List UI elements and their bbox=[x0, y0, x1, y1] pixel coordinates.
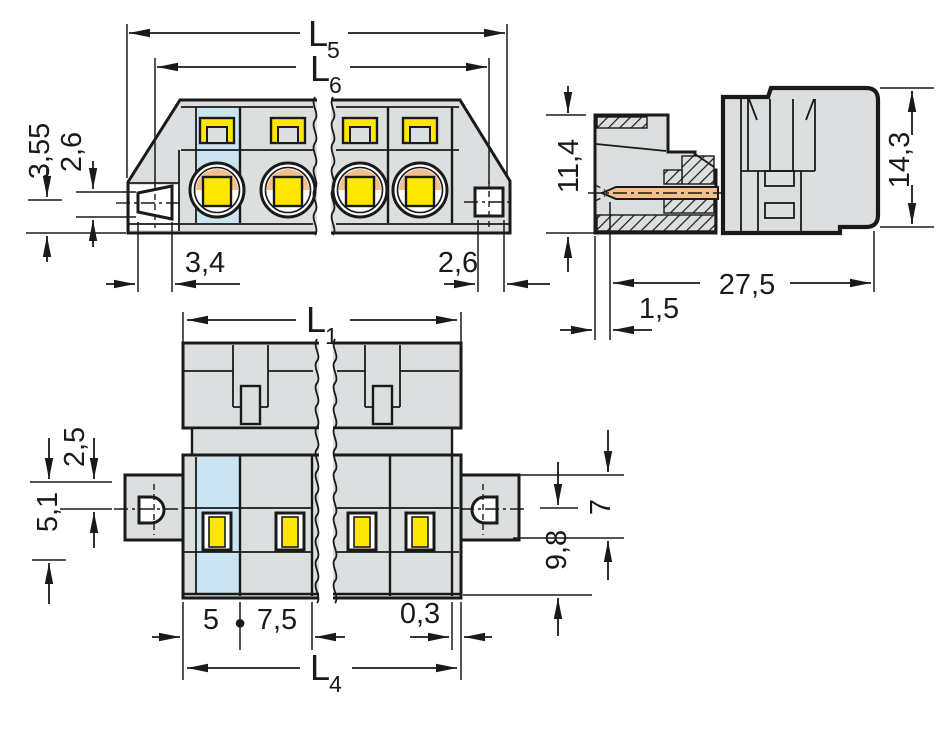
side-housing bbox=[723, 88, 878, 233]
dim-label-L4: L bbox=[310, 647, 330, 688]
clamp-window bbox=[200, 118, 234, 143]
front-view: L 5 L 6 3,55 2,6 3,4 2,6 bbox=[24, 13, 550, 292]
dim-label-L1-sub: 1 bbox=[325, 323, 338, 349]
dim-label-5-1: 5,1 bbox=[32, 492, 64, 532]
dim-pitch-separator-dot: ● bbox=[234, 612, 246, 634]
dim-label-2-6-right: 2,6 bbox=[438, 247, 478, 279]
dim-label-3-55: 3,55 bbox=[24, 123, 56, 179]
section-hatch-mid1 bbox=[682, 156, 714, 184]
dim-label-9-8: 9,8 bbox=[541, 530, 573, 570]
clamp-window bbox=[403, 118, 437, 143]
plan-window bbox=[348, 513, 376, 550]
dim-label-1-5: 1,5 bbox=[639, 293, 679, 325]
dim-label-L1: L bbox=[306, 299, 326, 340]
dim-label-L4-sub: 4 bbox=[329, 671, 342, 697]
dim-label-L6-sub: 6 bbox=[329, 72, 342, 98]
dim-label-11-4: 11,4 bbox=[553, 139, 585, 193]
section-hatch-mid3 bbox=[664, 199, 714, 213]
dim-label-3-4: 3,4 bbox=[185, 247, 225, 279]
screw-contact bbox=[333, 163, 387, 217]
dim-label-7-5: 7,5 bbox=[257, 604, 297, 636]
clamp-window bbox=[343, 118, 377, 143]
side-socket-body bbox=[595, 115, 716, 233]
plan-left-flange bbox=[114, 475, 183, 540]
plan-window bbox=[203, 513, 231, 550]
technical-drawing-canvas: L 5 L 6 3,55 2,6 3,4 2,6 bbox=[0, 0, 944, 736]
clamp-window bbox=[271, 118, 305, 143]
section-hatch-bottom bbox=[597, 215, 715, 231]
screw-contact bbox=[190, 163, 244, 217]
section-hatch-top bbox=[597, 117, 647, 128]
plan-view: L 1 2,5 5,1 7 9,8 5 ● 7,5 bbox=[30, 299, 624, 697]
plan-window bbox=[276, 513, 304, 550]
side-view: 11,4 14,3 27,5 1,5 bbox=[546, 86, 934, 340]
dim-label-L6: L bbox=[310, 48, 330, 89]
screw-contact bbox=[261, 163, 315, 217]
plan-window bbox=[406, 513, 434, 550]
section-hatch-mid2 bbox=[664, 170, 682, 184]
coding-plunger bbox=[373, 386, 392, 424]
dim-label-2-6-left: 2,6 bbox=[56, 132, 88, 172]
plan-right-flange bbox=[460, 475, 526, 540]
dim-label-0-3: 0,3 bbox=[400, 598, 440, 630]
dim-label-5: 5 bbox=[203, 604, 219, 636]
dim-label-27-5: 27,5 bbox=[719, 269, 775, 301]
screw-contact bbox=[393, 163, 447, 217]
dim-label-14-3: 14,3 bbox=[884, 132, 916, 188]
dim-label-7: 7 bbox=[585, 499, 617, 515]
coding-plunger bbox=[241, 386, 260, 424]
connector-dimension-drawing: L 5 L 6 3,55 2,6 3,4 2,6 bbox=[0, 0, 944, 736]
dim-label-2-5: 2,5 bbox=[59, 427, 91, 467]
